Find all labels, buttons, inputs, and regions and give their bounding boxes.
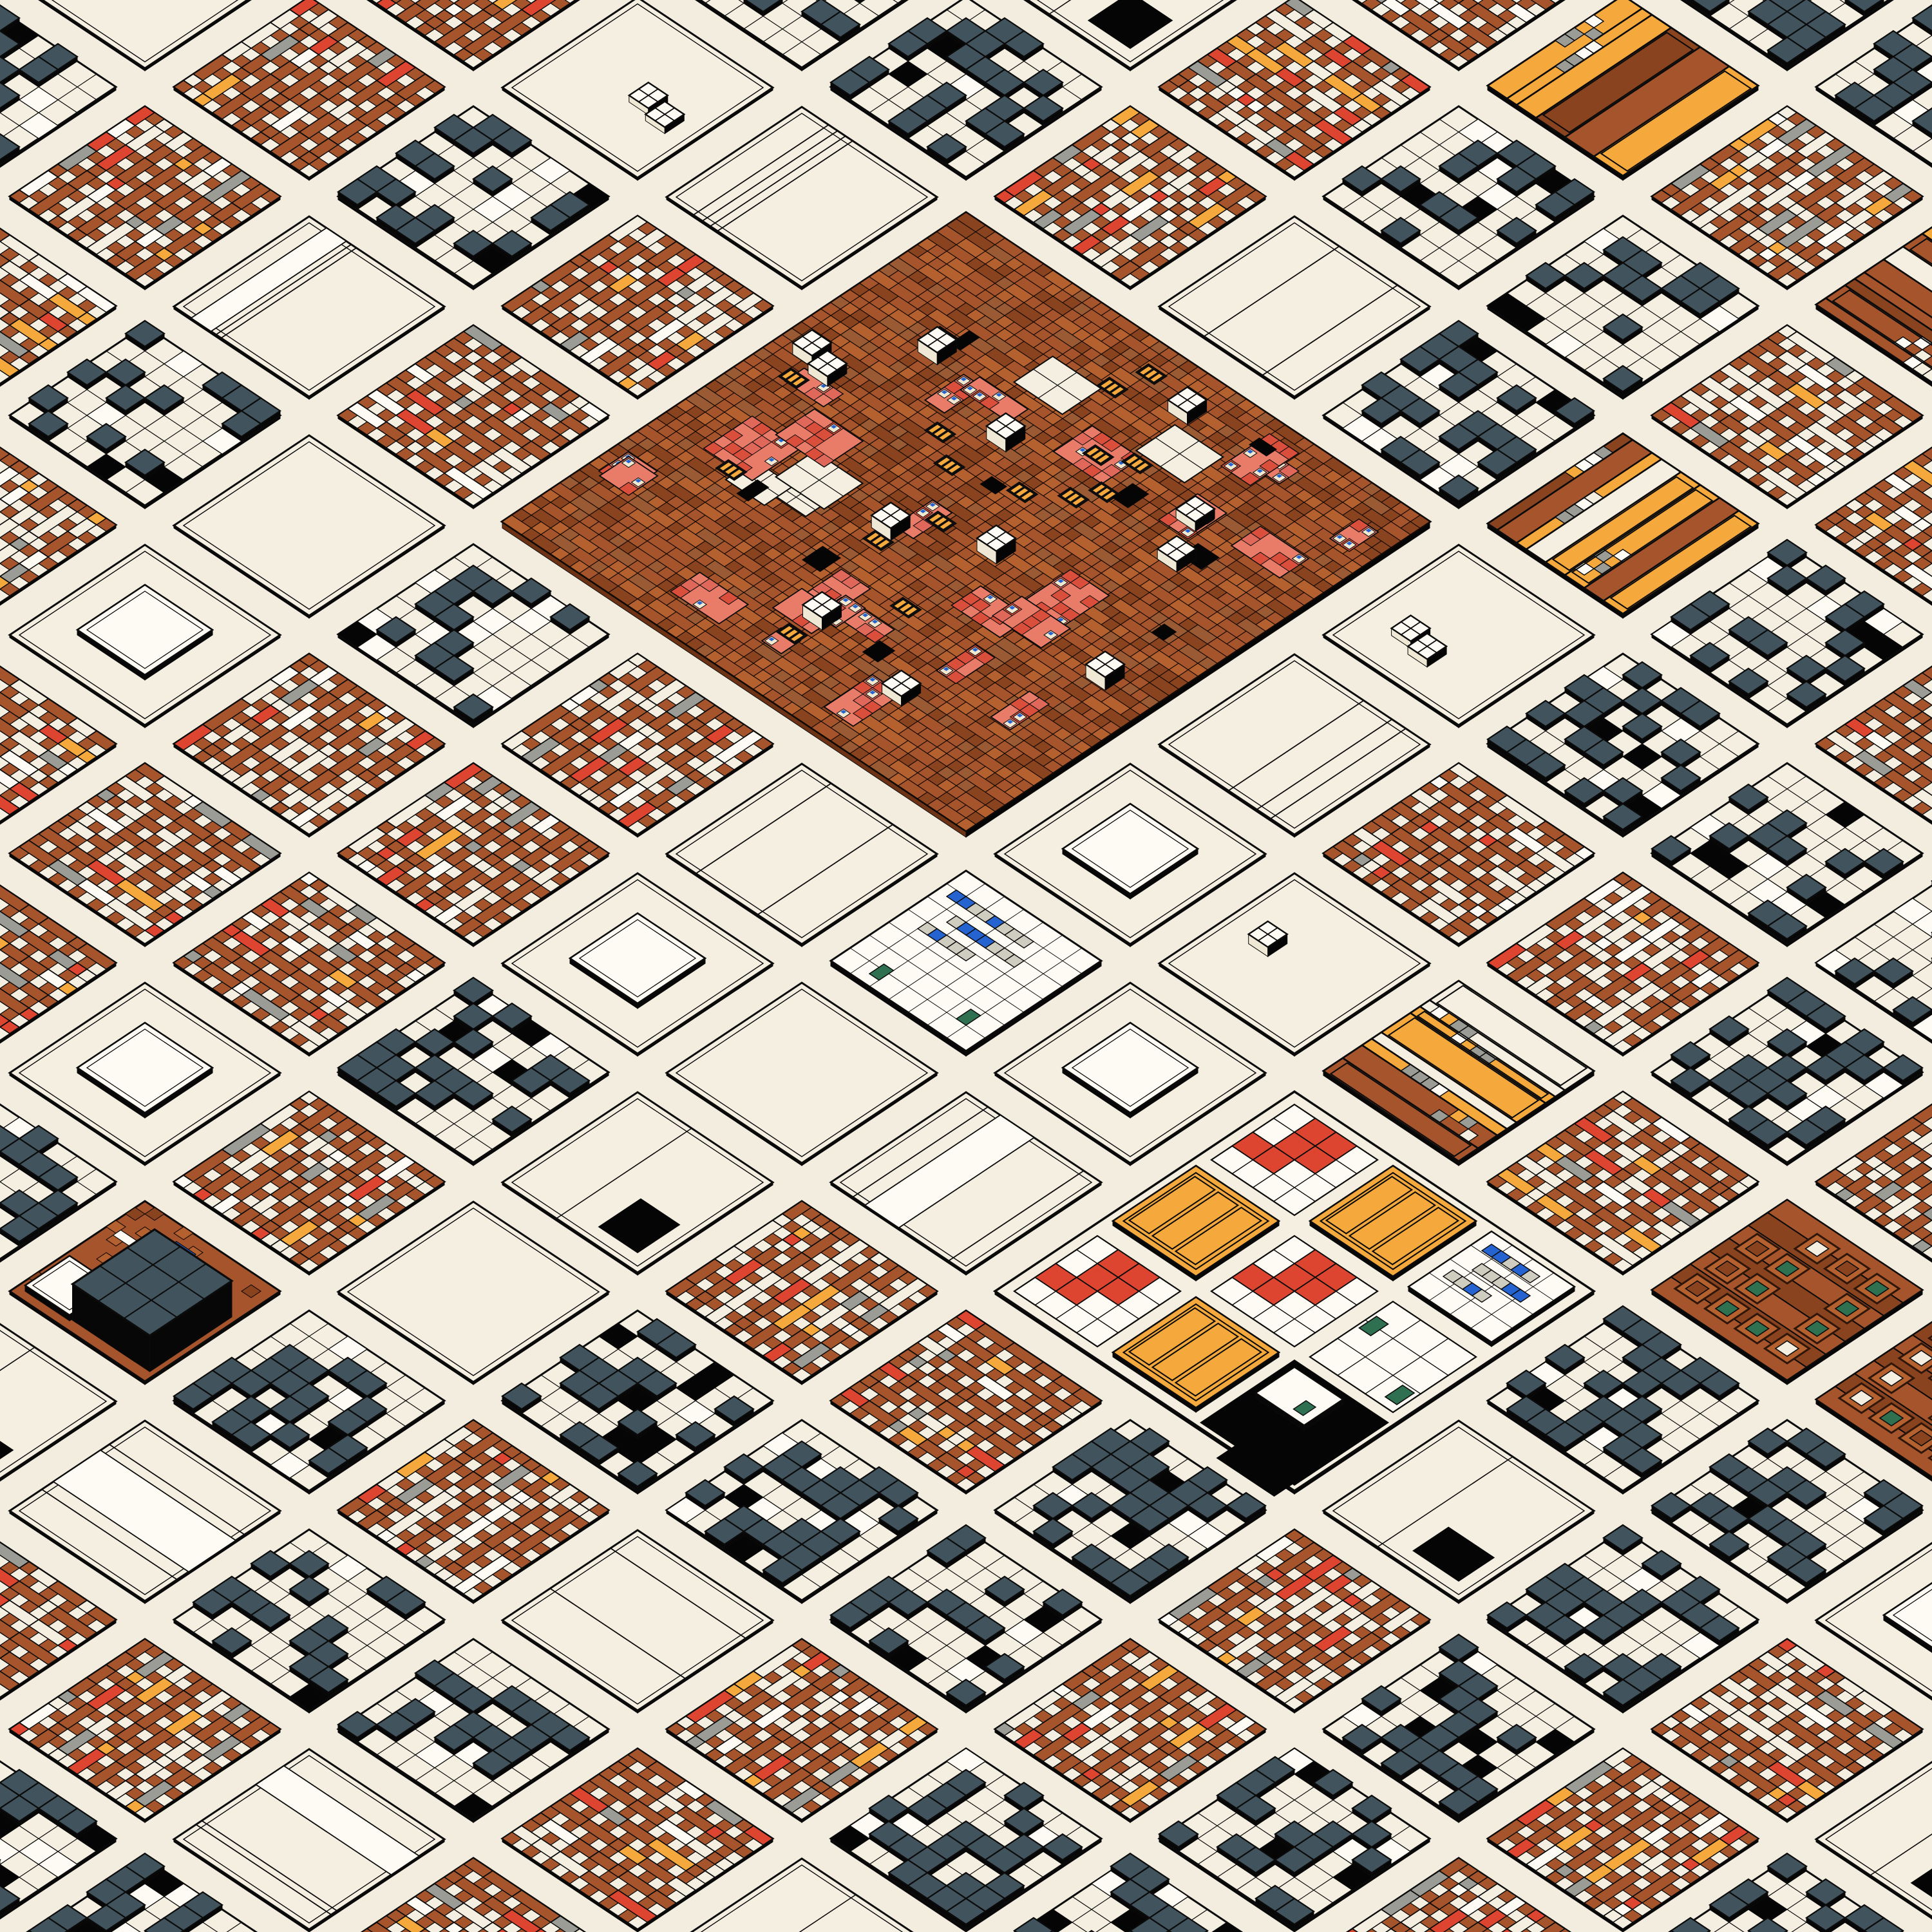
art-canvas <box>0 0 1932 1932</box>
generative-isometric-city-artwork <box>0 0 1932 1932</box>
